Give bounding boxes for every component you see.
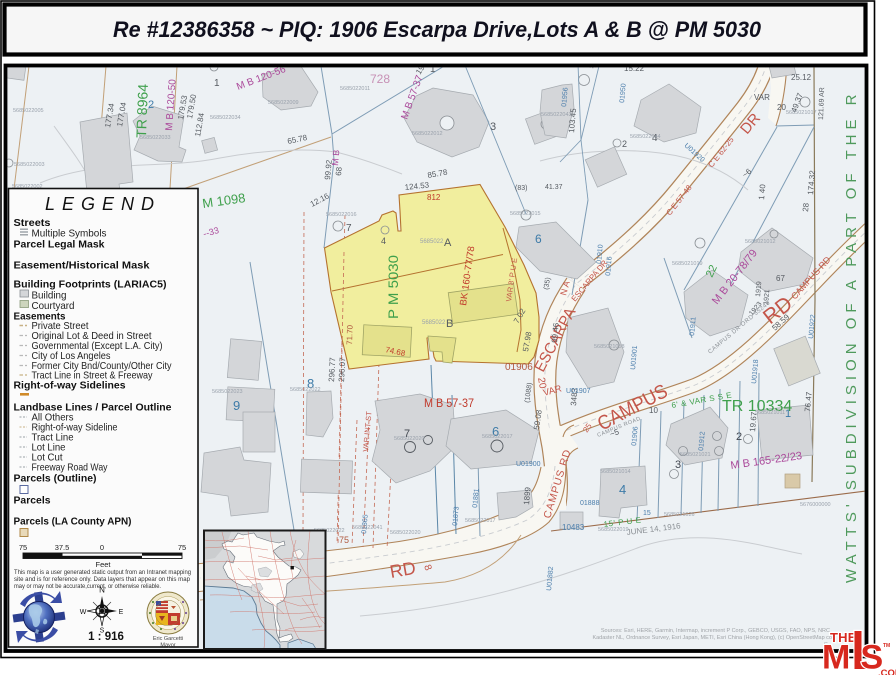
svg-text:5685022023: 5685022023 [212, 389, 243, 395]
svg-text:4: 4 [381, 236, 386, 246]
svg-text:25.12: 25.12 [791, 73, 812, 82]
svg-text:5685022015: 5685022015 [510, 211, 541, 217]
svg-text:Mayor: Mayor [160, 643, 175, 649]
svg-text:01906: 01906 [505, 362, 533, 373]
svg-text:6: 6 [535, 232, 542, 246]
svg-text:Easement/Historical Mask: Easement/Historical Mask [14, 260, 150, 272]
svg-text:1: 1 [214, 78, 220, 89]
svg-text:5685022011: 5685022011 [340, 86, 370, 92]
svg-text:B: B [446, 318, 453, 330]
svg-text:99.92: 99.92 [323, 159, 334, 180]
svg-text:1 40: 1 40 [757, 183, 767, 200]
svg-text:9: 9 [233, 398, 240, 413]
svg-text:2: 2 [148, 99, 154, 111]
svg-text:5685022041: 5685022041 [352, 525, 383, 531]
svg-text:N: N [99, 586, 105, 595]
svg-text:5685022022: 5685022022 [290, 387, 321, 393]
svg-text:5685022003: 5685022003 [14, 162, 45, 168]
svg-text:LEGEND: LEGEND [45, 194, 161, 214]
svg-text:W: W [80, 609, 87, 616]
svg-text:7: 7 [346, 223, 352, 234]
svg-text:41.37: 41.37 [545, 184, 563, 191]
svg-text:296.77: 296.77 [327, 357, 337, 382]
svg-text:Feet: Feet [95, 560, 111, 569]
svg-text:5685022016: 5685022016 [326, 212, 357, 218]
svg-text:5685022: 5685022 [422, 320, 446, 326]
svg-text:71.70: 71.70 [345, 324, 355, 345]
svg-text:Kadaster NL, Ordnance Survey,: Kadaster NL, Ordnance Survey, Esri Japan… [592, 635, 832, 641]
svg-text:M B 57-37: M B 57-37 [424, 398, 474, 410]
svg-text:site and is for reference on: site and is for reference only. Data lay… [14, 576, 190, 583]
svg-text:Eric Garcetti: Eric Garcetti [153, 636, 183, 642]
svg-text:M: M [822, 639, 850, 675]
svg-text:10: 10 [649, 406, 658, 415]
svg-text:5685022: 5685022 [420, 239, 444, 245]
svg-text:99.46: 99.46 [550, 322, 561, 343]
svg-text:1: 1 [785, 408, 791, 420]
svg-text:This map is a user generated s: This map is a user generated static outp… [14, 569, 191, 576]
svg-text:P M 5030: P M 5030 [386, 255, 401, 319]
svg-text:728: 728 [370, 72, 390, 86]
svg-text:5685022005: 5685022005 [13, 108, 44, 114]
svg-text:U01907: U01907 [566, 388, 591, 395]
svg-text:15: 15 [643, 510, 651, 517]
svg-text:812: 812 [427, 193, 441, 202]
svg-text:5685022020: 5685022020 [394, 436, 425, 442]
svg-text:76.47: 76.47 [803, 391, 814, 412]
svg-text:1919: 1919 [755, 281, 763, 297]
svg-text:67: 67 [776, 274, 785, 283]
svg-text:5685022043: 5685022043 [541, 112, 572, 118]
svg-text:5685022020: 5685022020 [390, 530, 421, 536]
svg-text:(83): (83) [515, 185, 527, 192]
svg-text:2: 2 [622, 139, 627, 149]
svg-text:Parcels (LA County APN): Parcels (LA County APN) [14, 516, 132, 528]
svg-text:296.07: 296.07 [337, 357, 347, 382]
svg-text:.COM: .COM [878, 668, 896, 675]
svg-text:5685022017: 5685022017 [482, 434, 513, 440]
svg-text:Parcels: Parcels [14, 495, 51, 507]
svg-text:WATTS' SUBDIVISION OF A PART O: WATTS' SUBDIVISION OF A PART OF THE R [843, 90, 860, 583]
svg-text:37.5: 37.5 [55, 543, 70, 552]
svg-text:75: 75 [178, 543, 186, 552]
svg-text:5685021017: 5685021017 [786, 110, 817, 116]
svg-text:5685022009: 5685022009 [268, 100, 299, 106]
svg-text:75: 75 [19, 543, 27, 552]
svg-text:Parcels (Outline): Parcels (Outline) [14, 473, 97, 485]
svg-text:5685021026: 5685021026 [664, 512, 695, 518]
svg-text:01888: 01888 [580, 500, 600, 507]
svg-text:5676000000: 5676000000 [800, 502, 831, 508]
svg-text:5685022019: 5685022019 [598, 527, 629, 533]
svg-text:0: 0 [100, 543, 104, 552]
svg-text:TM: TM [883, 643, 890, 649]
svg-text:68: 68 [334, 166, 344, 176]
svg-text:5685021012: 5685021012 [745, 239, 776, 245]
svg-text:Right-of-way Sidelines: Right-of-way Sidelines [14, 380, 126, 392]
svg-text:3: 3 [490, 121, 496, 133]
svg-text:3: 3 [675, 459, 681, 471]
svg-text:2: 2 [736, 431, 742, 443]
svg-text:5685022033: 5685022033 [140, 135, 171, 141]
svg-text:4: 4 [619, 482, 626, 497]
svg-text:U01900: U01900 [516, 461, 541, 468]
svg-text:75: 75 [339, 535, 349, 545]
svg-text:Re #12386358 ~ PIQ: 1906 Escar: Re #12386358 ~ PIQ: 1906 Escarpa Drive,L… [113, 17, 762, 42]
svg-text:E: E [119, 609, 124, 616]
svg-text:28: 28 [801, 202, 811, 212]
svg-text:5685021019: 5685021019 [672, 261, 703, 267]
svg-text:5685022034: 5685022034 [210, 115, 241, 121]
svg-text:5685022012: 5685022012 [412, 131, 443, 137]
svg-text:may or may not be accurate,cur: may or may not be accurate,current, or o… [14, 583, 161, 590]
svg-text:5685021014: 5685021014 [600, 469, 631, 475]
svg-text:5685021058: 5685021058 [594, 344, 625, 350]
svg-text:Sources: Esri, HERE, Garmin, I: Sources: Esri, HERE, Garmin, Intermap, i… [601, 628, 830, 634]
svg-text:Parcel Legal Mask: Parcel Legal Mask [14, 239, 105, 251]
svg-text:A: A [444, 237, 452, 249]
svg-text:1 : 916: 1 : 916 [88, 631, 124, 643]
svg-text:10483: 10483 [562, 523, 585, 532]
svg-text:5685022017: 5685022017 [465, 518, 496, 524]
svg-text:5685021011: 5685021011 [755, 410, 785, 416]
svg-text:5685022044: 5685022044 [630, 134, 661, 140]
svg-text:121.69 AR: 121.69 AR [818, 87, 826, 120]
svg-text:1899: 1899 [522, 486, 533, 505]
svg-text:5685021021: 5685021021 [680, 452, 711, 458]
svg-text:VAR: VAR [754, 93, 770, 102]
